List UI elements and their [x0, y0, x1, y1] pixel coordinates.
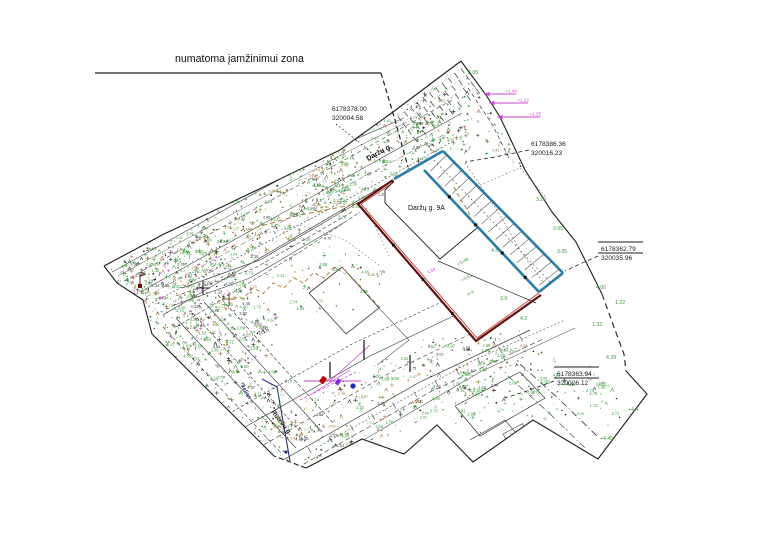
svg-text:1.82: 1.82 [416, 122, 423, 126]
svg-text:3.50: 3.50 [241, 364, 250, 369]
svg-text:1.35: 1.35 [598, 382, 607, 387]
svg-text:4.67: 4.67 [267, 317, 276, 322]
svg-text:320016.23: 320016.23 [531, 150, 563, 157]
svg-text:4.86: 4.86 [296, 306, 305, 311]
svg-text:4.39: 4.39 [606, 355, 616, 361]
svg-text:2.50: 2.50 [210, 377, 219, 382]
svg-text:3.34: 3.34 [491, 384, 498, 388]
svg-text:1.51: 1.51 [277, 393, 284, 397]
svg-text:3.59: 3.59 [194, 344, 203, 349]
svg-text:4.65: 4.65 [341, 161, 350, 166]
svg-text:3.05: 3.05 [310, 206, 319, 211]
svg-text:2.58: 2.58 [413, 146, 420, 150]
svg-text:3.05: 3.05 [557, 249, 567, 255]
svg-text:2.23: 2.23 [238, 217, 245, 221]
svg-text:2.05: 2.05 [360, 289, 369, 294]
svg-text:2.33: 2.33 [250, 346, 259, 351]
svg-text:2.37: 2.37 [481, 348, 490, 353]
svg-text:4.58: 4.58 [482, 343, 491, 348]
svg-text:4.02: 4.02 [436, 352, 443, 356]
svg-text:4.68: 4.68 [251, 319, 260, 324]
svg-text:3.68: 3.68 [316, 413, 323, 417]
svg-text:1.66: 1.66 [375, 424, 384, 429]
svg-text:6178363.94: 6178363.94 [557, 371, 592, 378]
svg-text:3.71: 3.71 [532, 390, 541, 395]
svg-text:4.2: 4.2 [520, 316, 527, 322]
svg-text:4.82: 4.82 [501, 347, 510, 352]
svg-text:2.87: 2.87 [226, 238, 233, 242]
svg-text:4.09: 4.09 [216, 305, 223, 309]
svg-text:6178378.00: 6178378.00 [332, 106, 367, 113]
svg-text:4.84: 4.84 [199, 235, 206, 239]
svg-text:2.05: 2.05 [467, 412, 476, 417]
svg-text:3.51: 3.51 [336, 443, 345, 448]
svg-text:1.96: 1.96 [333, 267, 342, 272]
svg-text:3.33: 3.33 [217, 239, 226, 244]
svg-text:4.79: 4.79 [141, 288, 150, 293]
svg-text:2.25: 2.25 [330, 433, 339, 438]
svg-text:3.07: 3.07 [239, 311, 248, 316]
svg-text:4.63: 4.63 [462, 345, 471, 350]
svg-text:2.75: 2.75 [268, 387, 275, 391]
svg-text:4.72: 4.72 [324, 236, 331, 240]
svg-text:2.41: 2.41 [492, 149, 499, 153]
svg-text:4.26: 4.26 [463, 371, 472, 376]
svg-text:2.78: 2.78 [385, 419, 394, 424]
svg-text:4.53: 4.53 [213, 345, 220, 349]
svg-text:3.71: 3.71 [611, 411, 620, 416]
svg-text:≈1.40: ≈1.40 [506, 89, 518, 94]
svg-text:3.07: 3.07 [438, 99, 445, 103]
svg-text:4.74: 4.74 [209, 250, 218, 255]
svg-text:4.51: 4.51 [270, 217, 279, 222]
svg-text:3.38: 3.38 [173, 284, 182, 289]
svg-text:4.50: 4.50 [509, 350, 516, 354]
svg-text:3.43: 3.43 [195, 249, 204, 254]
svg-text:3.64: 3.64 [397, 408, 404, 412]
svg-text:3.73: 3.73 [245, 271, 254, 276]
svg-text:3.88: 3.88 [319, 262, 328, 267]
svg-text:3.25: 3.25 [377, 401, 386, 406]
svg-text:3.37: 3.37 [271, 223, 280, 228]
svg-text:2.76: 2.76 [338, 392, 345, 396]
svg-text:2.39: 2.39 [496, 408, 503, 412]
svg-text:3.75: 3.75 [329, 189, 338, 194]
svg-text:320035.96: 320035.96 [601, 255, 633, 262]
svg-text:3.70: 3.70 [338, 214, 347, 219]
svg-text:1.94: 1.94 [383, 159, 392, 164]
svg-text:2.74: 2.74 [289, 300, 298, 305]
svg-text:1.36: 1.36 [349, 181, 358, 186]
svg-text:3.20: 3.20 [536, 197, 546, 203]
svg-text:4.11: 4.11 [254, 391, 262, 396]
svg-text:1.98: 1.98 [391, 376, 400, 381]
svg-text:320004.58: 320004.58 [332, 115, 364, 122]
svg-text:2.61: 2.61 [239, 336, 248, 341]
svg-text:4.78: 4.78 [220, 348, 227, 352]
svg-text:4.28: 4.28 [264, 199, 273, 204]
svg-text:≈1.22: ≈1.22 [518, 98, 530, 103]
svg-text:3.55: 3.55 [433, 385, 442, 390]
svg-text:3.49: 3.49 [308, 174, 315, 178]
svg-text:4.45: 4.45 [242, 301, 251, 306]
svg-text:4.31: 4.31 [191, 304, 200, 309]
svg-text:4.47: 4.47 [410, 375, 417, 379]
svg-text:4.65: 4.65 [183, 353, 192, 358]
svg-text:3.56: 3.56 [477, 360, 486, 365]
svg-text:1.69: 1.69 [274, 415, 281, 419]
svg-text:numatoma įamžinimui zona: numatoma įamžinimui zona [175, 53, 304, 65]
svg-text:1.72: 1.72 [590, 403, 599, 408]
svg-text:3.87: 3.87 [447, 344, 456, 349]
svg-text:3.9: 3.9 [500, 296, 507, 302]
svg-text:3.02: 3.02 [224, 266, 231, 270]
svg-text:4.24: 4.24 [151, 283, 160, 288]
svg-text:1.64: 1.64 [328, 424, 335, 428]
svg-text:3.64: 3.64 [230, 253, 237, 257]
svg-text:4.09: 4.09 [577, 412, 584, 416]
svg-text:3.81: 3.81 [458, 408, 467, 413]
svg-text:4.25: 4.25 [479, 367, 488, 372]
svg-text:4.45: 4.45 [361, 269, 370, 274]
svg-text:2.58: 2.58 [227, 274, 236, 279]
svg-text:1.22: 1.22 [615, 300, 625, 306]
svg-text:1.63: 1.63 [384, 119, 391, 123]
svg-text:2.32: 2.32 [356, 405, 365, 410]
svg-text:1.22: 1.22 [241, 212, 248, 216]
svg-text:1.53: 1.53 [198, 331, 207, 336]
svg-text:≈1.35: ≈1.35 [530, 112, 542, 117]
svg-text:2.88: 2.88 [509, 380, 518, 385]
svg-text:4.24: 4.24 [203, 337, 212, 342]
svg-text:2.58: 2.58 [497, 353, 506, 358]
svg-text:4.32: 4.32 [247, 385, 254, 389]
svg-text:4.47: 4.47 [214, 262, 223, 267]
svg-text:2.46: 2.46 [232, 226, 239, 230]
svg-text:2.02: 2.02 [175, 236, 182, 240]
svg-text:4.47: 4.47 [197, 323, 204, 327]
svg-text:4.37: 4.37 [318, 168, 325, 172]
svg-text:3.02: 3.02 [284, 225, 293, 230]
svg-text:3.66: 3.66 [212, 323, 219, 327]
svg-text:4.06: 4.06 [540, 380, 550, 386]
svg-text:1.46: 1.46 [225, 302, 234, 307]
svg-text:+4.4: +4.4 [628, 407, 638, 413]
svg-text:3.56: 3.56 [219, 318, 226, 322]
svg-text:4.5: 4.5 [491, 248, 498, 254]
svg-text:4.32: 4.32 [190, 317, 199, 322]
svg-text:3.66: 3.66 [381, 376, 390, 381]
svg-text:4.76: 4.76 [361, 186, 370, 191]
svg-text:3.73: 3.73 [176, 308, 185, 313]
svg-text:2.71: 2.71 [232, 369, 241, 374]
svg-text:1.70: 1.70 [494, 338, 501, 342]
svg-text:3.76: 3.76 [227, 327, 234, 331]
svg-text:1.32: 1.32 [592, 322, 602, 328]
svg-text:6178386.36: 6178386.36 [531, 141, 566, 148]
svg-text:1.81: 1.81 [268, 189, 275, 193]
svg-text:4.49: 4.49 [158, 295, 167, 300]
svg-text:3.65: 3.65 [553, 226, 563, 232]
svg-text:4.52: 4.52 [400, 356, 409, 361]
svg-text:2.93: 2.93 [366, 421, 373, 425]
svg-text:2.14: 2.14 [457, 389, 464, 393]
svg-text:2.73: 2.73 [430, 409, 439, 414]
svg-text:2.74: 2.74 [586, 388, 595, 393]
svg-text:4.11: 4.11 [277, 273, 285, 278]
svg-text:4.66: 4.66 [268, 369, 277, 374]
svg-text:2.16: 2.16 [251, 254, 260, 259]
svg-text:4.24: 4.24 [316, 299, 323, 303]
svg-text:1.75: 1.75 [409, 366, 416, 370]
svg-text:2.67: 2.67 [371, 137, 378, 141]
svg-text:2.76: 2.76 [197, 268, 206, 273]
svg-text:320026.12: 320026.12 [557, 380, 589, 387]
svg-text:3.47: 3.47 [333, 198, 342, 203]
svg-text:1.93: 1.93 [183, 343, 192, 348]
svg-text:3.68: 3.68 [348, 174, 355, 178]
svg-text:4.20: 4.20 [285, 236, 292, 240]
svg-text:2.49: 2.49 [146, 262, 153, 266]
svg-text:4.53: 4.53 [342, 187, 349, 191]
svg-text:1.74: 1.74 [311, 398, 318, 402]
svg-text:1.72: 1.72 [253, 304, 262, 309]
svg-text:2.09: 2.09 [237, 325, 246, 330]
svg-text:4.81: 4.81 [313, 182, 322, 187]
svg-text:3.28: 3.28 [432, 396, 441, 401]
svg-text:4.00: 4.00 [596, 285, 606, 291]
svg-text:2.91: 2.91 [447, 137, 454, 141]
svg-text:1.95: 1.95 [489, 359, 498, 364]
svg-text:2.31: 2.31 [177, 263, 184, 267]
svg-text:1.45: 1.45 [151, 268, 160, 273]
svg-text:3.05: 3.05 [468, 70, 478, 76]
svg-text:1.32: 1.32 [452, 381, 461, 386]
svg-text:4.32: 4.32 [339, 154, 346, 158]
svg-text:2.21: 2.21 [416, 400, 423, 404]
svg-text:3.01: 3.01 [420, 415, 427, 419]
svg-text:3.96: 3.96 [373, 373, 382, 378]
svg-text:1.87: 1.87 [364, 171, 373, 176]
svg-text:6178362.79: 6178362.79 [601, 246, 636, 253]
svg-text:1.8: 1.8 [378, 192, 384, 197]
svg-text:4.73: 4.73 [410, 116, 417, 120]
svg-text:2.68: 2.68 [201, 227, 208, 231]
svg-text:4.65: 4.65 [295, 436, 304, 441]
svg-text:+4.45: +4.45 [600, 436, 613, 442]
svg-text:Daržų g. 9A: Daržų g. 9A [408, 205, 445, 212]
svg-text:3.06: 3.06 [472, 391, 481, 396]
svg-text:4.73: 4.73 [341, 433, 350, 438]
svg-text:1.57: 1.57 [192, 357, 199, 361]
svg-text:4.75: 4.75 [187, 285, 196, 290]
svg-text:2.02: 2.02 [361, 394, 368, 398]
svg-text:4.59: 4.59 [302, 237, 311, 242]
svg-text:4.09: 4.09 [520, 344, 527, 348]
